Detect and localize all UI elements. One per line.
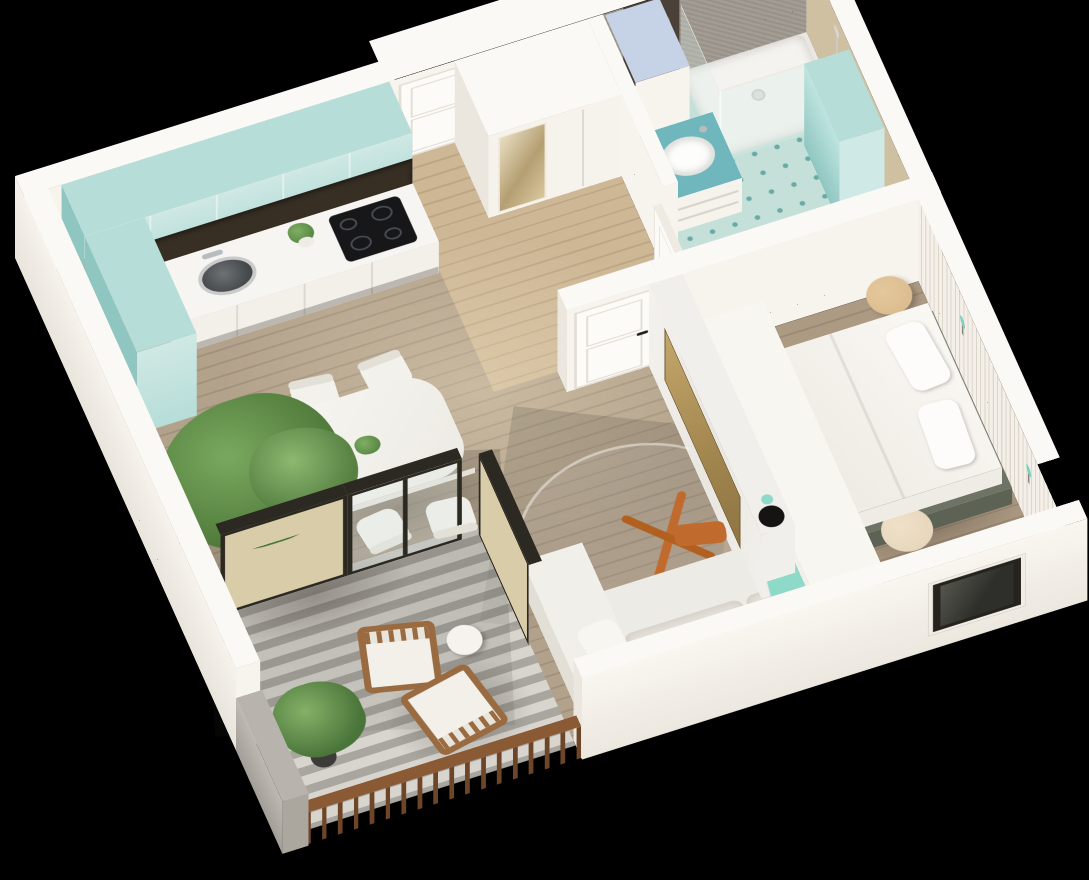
glass-door-mullion: [403, 479, 408, 556]
wall-sconce-1-stem: [962, 324, 963, 336]
bedroom-window: [928, 553, 1025, 636]
cooktop-burner-3: [348, 233, 375, 253]
apartment-3d-render: [0, 0, 1089, 880]
cooktop-burner-4: [382, 225, 404, 241]
chair-back-spindles: [364, 627, 429, 645]
window-glass-reflection: [940, 563, 1013, 626]
wall-sconce-2-stem: [1028, 473, 1029, 485]
bed-pillow-2: [915, 397, 978, 471]
balcony-chair-1: [356, 620, 443, 694]
table-plant-centerpiece: [352, 432, 384, 457]
cooktop-burner-2: [369, 203, 396, 223]
stone-parapet-south-face: [282, 793, 308, 854]
vanity-faucet: [698, 125, 708, 134]
wardrobe-mirror: [498, 122, 547, 213]
cooktop-burner-1: [338, 216, 360, 232]
wardrobe-door-seam: [582, 109, 584, 186]
stool-seat-bar: [673, 520, 728, 547]
